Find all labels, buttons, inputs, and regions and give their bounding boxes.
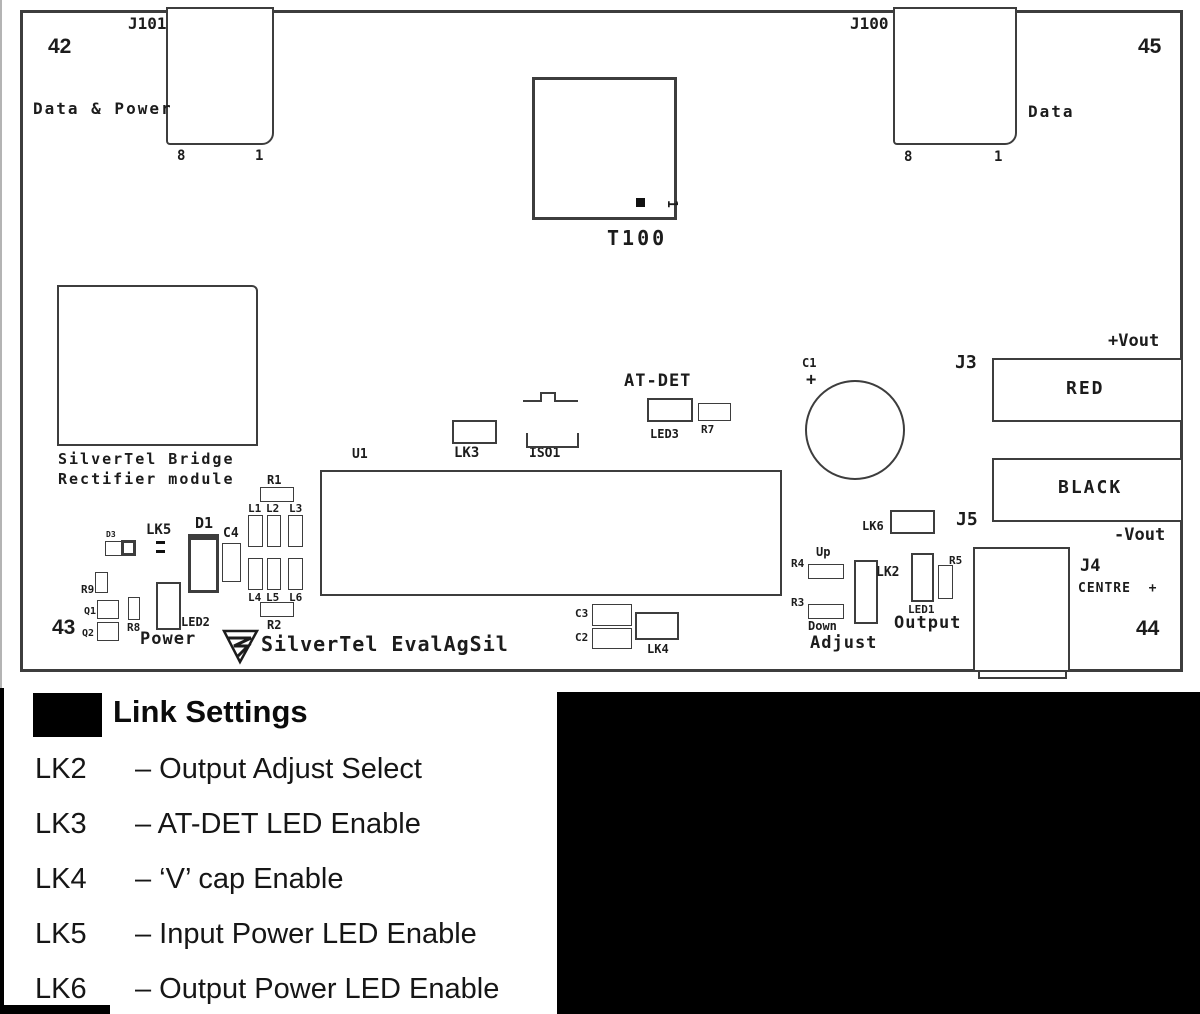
link-lk4-box — [635, 612, 679, 640]
label-c3: C3 — [575, 608, 588, 619]
connector-j4-box — [973, 547, 1070, 672]
label-j100: J100 — [850, 16, 889, 32]
figure-page: J10142Data & Power81J10045Data81T1001Sil… — [0, 0, 1200, 1014]
label-power: Power — [140, 631, 196, 648]
lk5-dash-2 — [156, 550, 165, 553]
l4-box — [248, 558, 263, 590]
legend-row-code: LK4 — [35, 863, 87, 896]
label-t100: T100 — [607, 228, 667, 248]
q2-box — [97, 622, 119, 641]
bridge-rectifier-module — [57, 285, 258, 446]
r8-box — [128, 597, 140, 620]
link-lk6-box — [890, 510, 935, 534]
r1-box — [260, 487, 294, 502]
legend-row-code: LK5 — [35, 918, 87, 951]
legend-row-description: – AT-DET LED Enable — [135, 808, 421, 841]
legend-row-description: – Output Power LED Enable — [135, 973, 499, 1006]
legend-row-code: LK2 — [35, 753, 87, 786]
label-black: BLACK — [1058, 479, 1122, 497]
page-left-border-upper — [0, 0, 2, 688]
legend-row-lk5: LK5– Input Power LED Enable — [0, 918, 560, 958]
l5-box — [267, 558, 281, 590]
label-l6: L6 — [289, 592, 302, 603]
legend-row-lk6: LK6– Output Power LED Enable — [0, 973, 560, 1013]
label-j5: J5 — [956, 511, 978, 529]
label-plus-vout: +Vout — [1108, 333, 1159, 350]
legend-row-code: LK3 — [35, 808, 87, 841]
link-lk2-box — [854, 560, 878, 624]
connector-j4-ext — [978, 670, 1067, 679]
label-j100-pin1: 1 — [994, 150, 1002, 164]
label-j3: J3 — [955, 354, 977, 372]
label-red: RED — [1066, 380, 1105, 398]
cap-c2-box — [592, 628, 632, 649]
label-lk2: LK2 — [876, 566, 899, 579]
l3-box — [288, 515, 303, 547]
label-c2: C2 — [575, 632, 588, 643]
r2-box — [260, 602, 294, 617]
cap-c1-circle — [805, 380, 905, 480]
legend-row-description: – ‘V’ cap Enable — [135, 863, 344, 896]
label-r9: R9 — [81, 584, 94, 595]
label-j101-pin8: 8 — [177, 149, 185, 163]
label-u1: U1 — [352, 448, 368, 461]
r5-box — [938, 565, 953, 599]
label-minus-vout: -Vout — [1114, 527, 1165, 544]
label-r3: R3 — [791, 597, 804, 608]
lk5-dash-1 — [156, 541, 165, 544]
label-j100-pin8: 8 — [904, 150, 912, 164]
label-centre-plus: CENTRE + — [1078, 582, 1157, 595]
label-r7: R7 — [701, 424, 714, 435]
label-lk5: LK5 — [146, 523, 171, 537]
label-q1: Q1 — [84, 607, 96, 617]
label-r1: R1 — [267, 474, 281, 486]
connector-j100 — [893, 7, 1017, 145]
connector-j101 — [166, 7, 274, 145]
legend-row-lk2: LK2– Output Adjust Select — [0, 753, 560, 793]
legend-title: Link Settings — [113, 694, 308, 730]
label-43: 43 — [52, 617, 75, 638]
label-data-power: Data & Power — [33, 101, 173, 117]
label-l1: L1 — [248, 503, 261, 514]
link-lk3-box — [452, 420, 497, 444]
label-lk3: LK3 — [454, 446, 479, 460]
label-45: 45 — [1138, 36, 1161, 57]
legend-black-square — [33, 693, 102, 737]
r7-box — [698, 403, 731, 421]
label-led2: LED2 — [181, 616, 210, 628]
label-bridge-line2: Rectifier module — [58, 472, 235, 487]
label-44: 44 — [1136, 618, 1159, 639]
label-l5: L5 — [266, 592, 279, 603]
label-down: Down — [808, 620, 837, 632]
r4-box — [808, 564, 844, 579]
label-iso1: ISO1 — [529, 447, 560, 460]
label-output: Output — [894, 615, 961, 632]
label-l4: L4 — [248, 592, 261, 603]
label-bridge-line1: SilverTel Bridge — [58, 452, 235, 467]
cap-c3-box — [592, 604, 632, 626]
label-j101: J101 — [128, 16, 167, 32]
label-j4: J4 — [1080, 558, 1100, 575]
label-led3: LED3 — [650, 428, 679, 440]
led1-box — [911, 553, 934, 602]
label-lk4: LK4 — [647, 643, 669, 655]
legend-row-code: LK6 — [35, 973, 87, 1006]
label-q2: Q2 — [82, 629, 94, 639]
legend-row-lk4: LK4– ‘V’ cap Enable — [0, 863, 560, 903]
label-r5: R5 — [949, 555, 962, 566]
r9-box — [95, 572, 108, 593]
label-at-det: AT-DET — [624, 373, 691, 390]
label-adjust: Adjust — [810, 635, 877, 652]
label-lk6: LK6 — [862, 520, 884, 532]
led2-box — [156, 582, 181, 630]
label-c1-plus: + — [806, 372, 816, 389]
q1-box — [97, 600, 119, 619]
l6-box — [288, 558, 303, 590]
l2-box — [267, 515, 281, 547]
label-d3: D3 — [106, 531, 116, 539]
label-c4: C4 — [223, 527, 239, 540]
d3-box-b — [121, 540, 136, 556]
label-t100-pin1: 1 — [665, 200, 678, 208]
legend-row-description: – Input Power LED Enable — [135, 918, 477, 951]
label-c1: C1 — [802, 357, 816, 369]
label-silvertel-evalagsil: SilverTel EvalAgSil — [261, 634, 509, 654]
label-r2: R2 — [267, 619, 281, 631]
page-left-border-lower — [0, 688, 4, 1014]
transformer-t100 — [532, 77, 677, 220]
cap-c4-box — [222, 543, 241, 582]
label-up: Up — [816, 546, 830, 558]
r3-box — [808, 604, 844, 619]
label-r4: R4 — [791, 558, 804, 569]
legend-row-description: – Output Adjust Select — [135, 753, 422, 786]
blacked-out-region — [557, 692, 1200, 1014]
label-j101-pin1: 1 — [255, 149, 263, 163]
t100-pin1-dot — [636, 198, 645, 207]
label-42: 42 — [48, 36, 71, 57]
diode-d1-box — [188, 534, 219, 593]
label-l2: L2 — [266, 503, 279, 514]
label-data: Data — [1028, 104, 1075, 120]
l1-box — [248, 515, 263, 547]
legend-row-lk3: LK3– AT-DET LED Enable — [0, 808, 560, 848]
label-d1: D1 — [195, 516, 213, 531]
label-l3: L3 — [289, 503, 302, 514]
ic-u1-box — [320, 470, 782, 596]
label-r8: R8 — [127, 622, 140, 633]
led3-box — [647, 398, 693, 422]
